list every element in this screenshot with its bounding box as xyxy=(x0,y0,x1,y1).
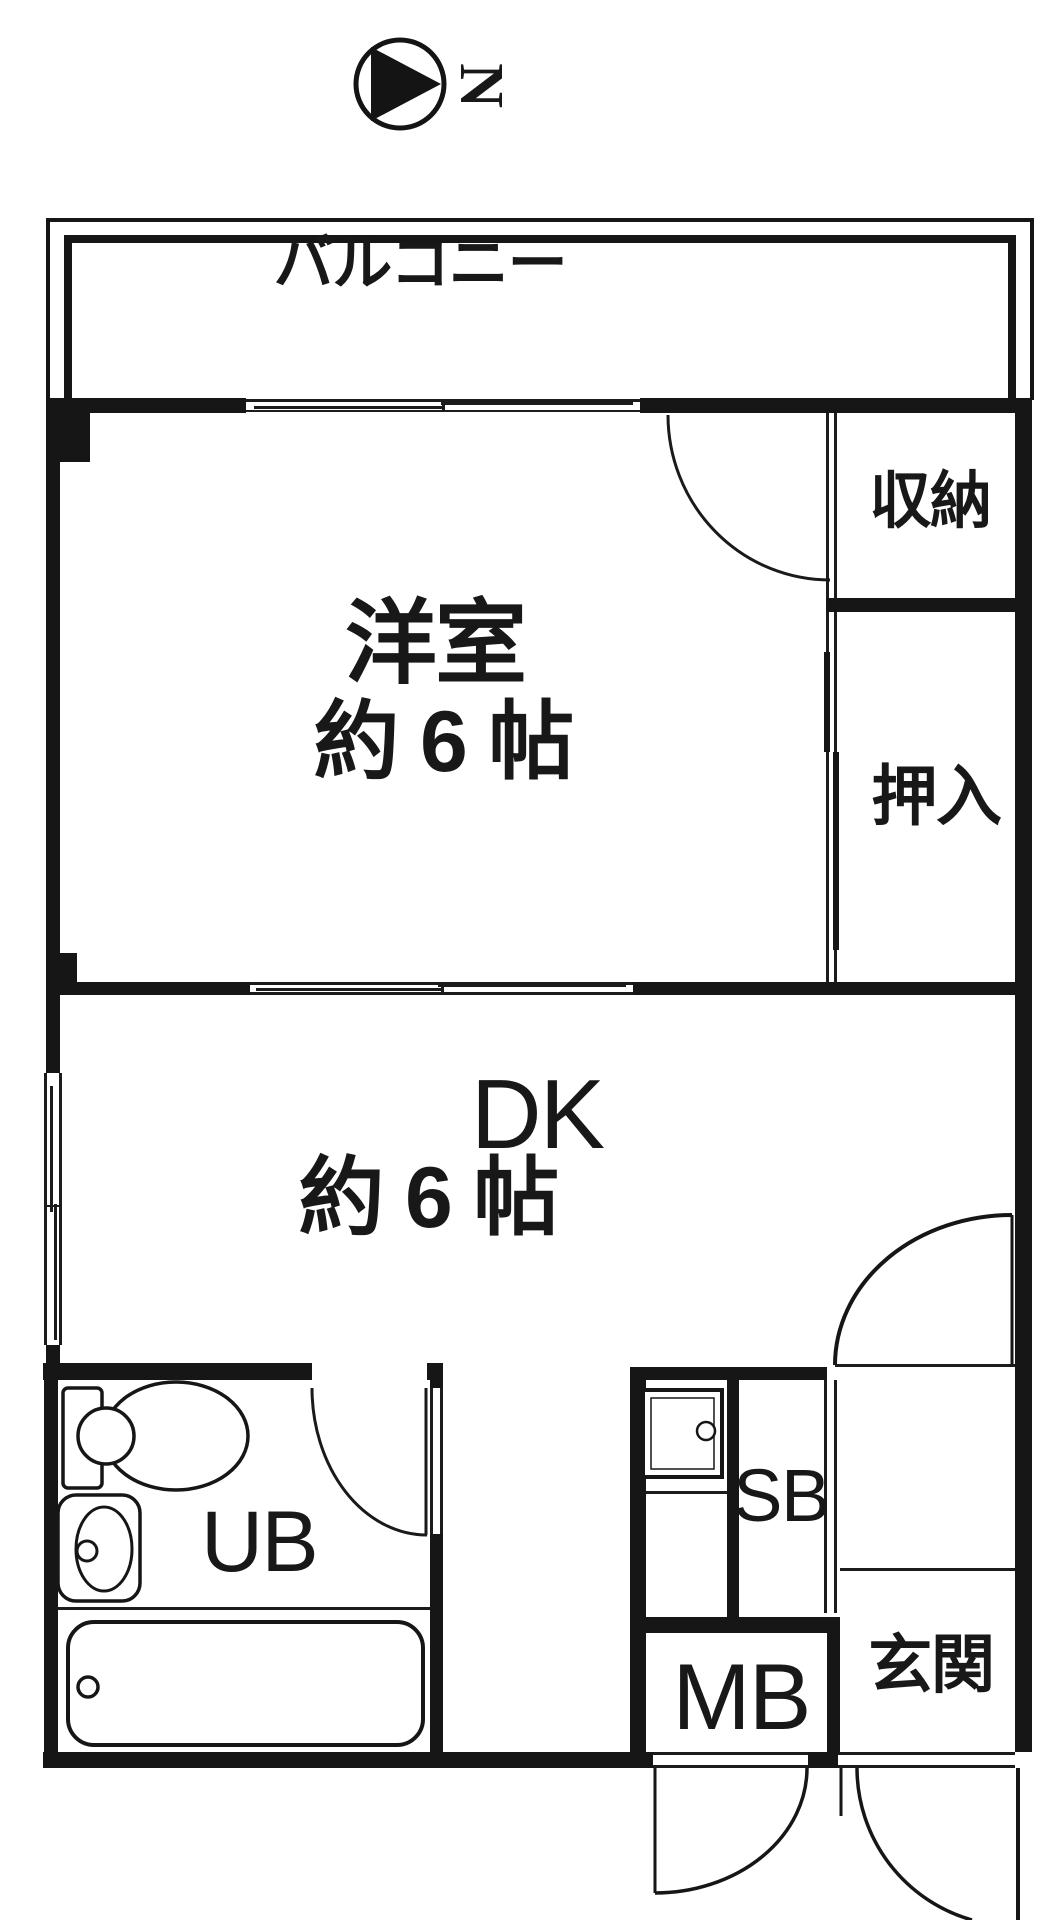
meter-box-label: MB xyxy=(672,1650,809,1744)
pan-drain-icon xyxy=(697,1422,715,1440)
entrance-door-arc xyxy=(857,1768,972,1920)
toilet-seat-icon xyxy=(78,1408,134,1464)
washbasin-faucet-icon xyxy=(77,1541,97,1561)
western-room-size-label: 約 6 帖 xyxy=(313,699,572,785)
compass-north-label: N xyxy=(450,63,512,107)
western-room-label: 洋室 xyxy=(345,598,525,690)
floor-plan: N バルコニー 洋室 約 6 帖 収納 押入 DK 約 6 帖 UB SB MB… xyxy=(0,0,1049,1920)
bathtub-icon xyxy=(68,1622,423,1745)
unit-bath-label: UB xyxy=(201,1499,317,1585)
dk-door-arc xyxy=(835,1215,1012,1365)
meter-box-door-arc xyxy=(655,1768,807,1893)
entrance-threshold xyxy=(838,1752,1015,1768)
room-dk-sliding-door xyxy=(250,982,633,995)
balcony-window xyxy=(246,398,640,413)
meter-box-threshold xyxy=(653,1752,808,1768)
storage-door-arc xyxy=(668,415,830,580)
balcony-label: バルコニー xyxy=(274,234,567,294)
shoe-box-label: SB xyxy=(733,1459,829,1533)
entrance-label: 玄関 xyxy=(868,1633,993,1697)
ub-right-wall-panel xyxy=(430,1388,443,1534)
dk-size-label: 約 6 帖 xyxy=(298,1155,557,1241)
bathtub-drain-icon xyxy=(78,1677,98,1697)
dk-left-window xyxy=(44,1073,62,1345)
unit-bath-door-arc xyxy=(312,1388,427,1535)
closet-label: 押入 xyxy=(871,763,1000,829)
dk-label: DK xyxy=(471,1065,603,1163)
storage-label: 収納 xyxy=(869,471,991,533)
